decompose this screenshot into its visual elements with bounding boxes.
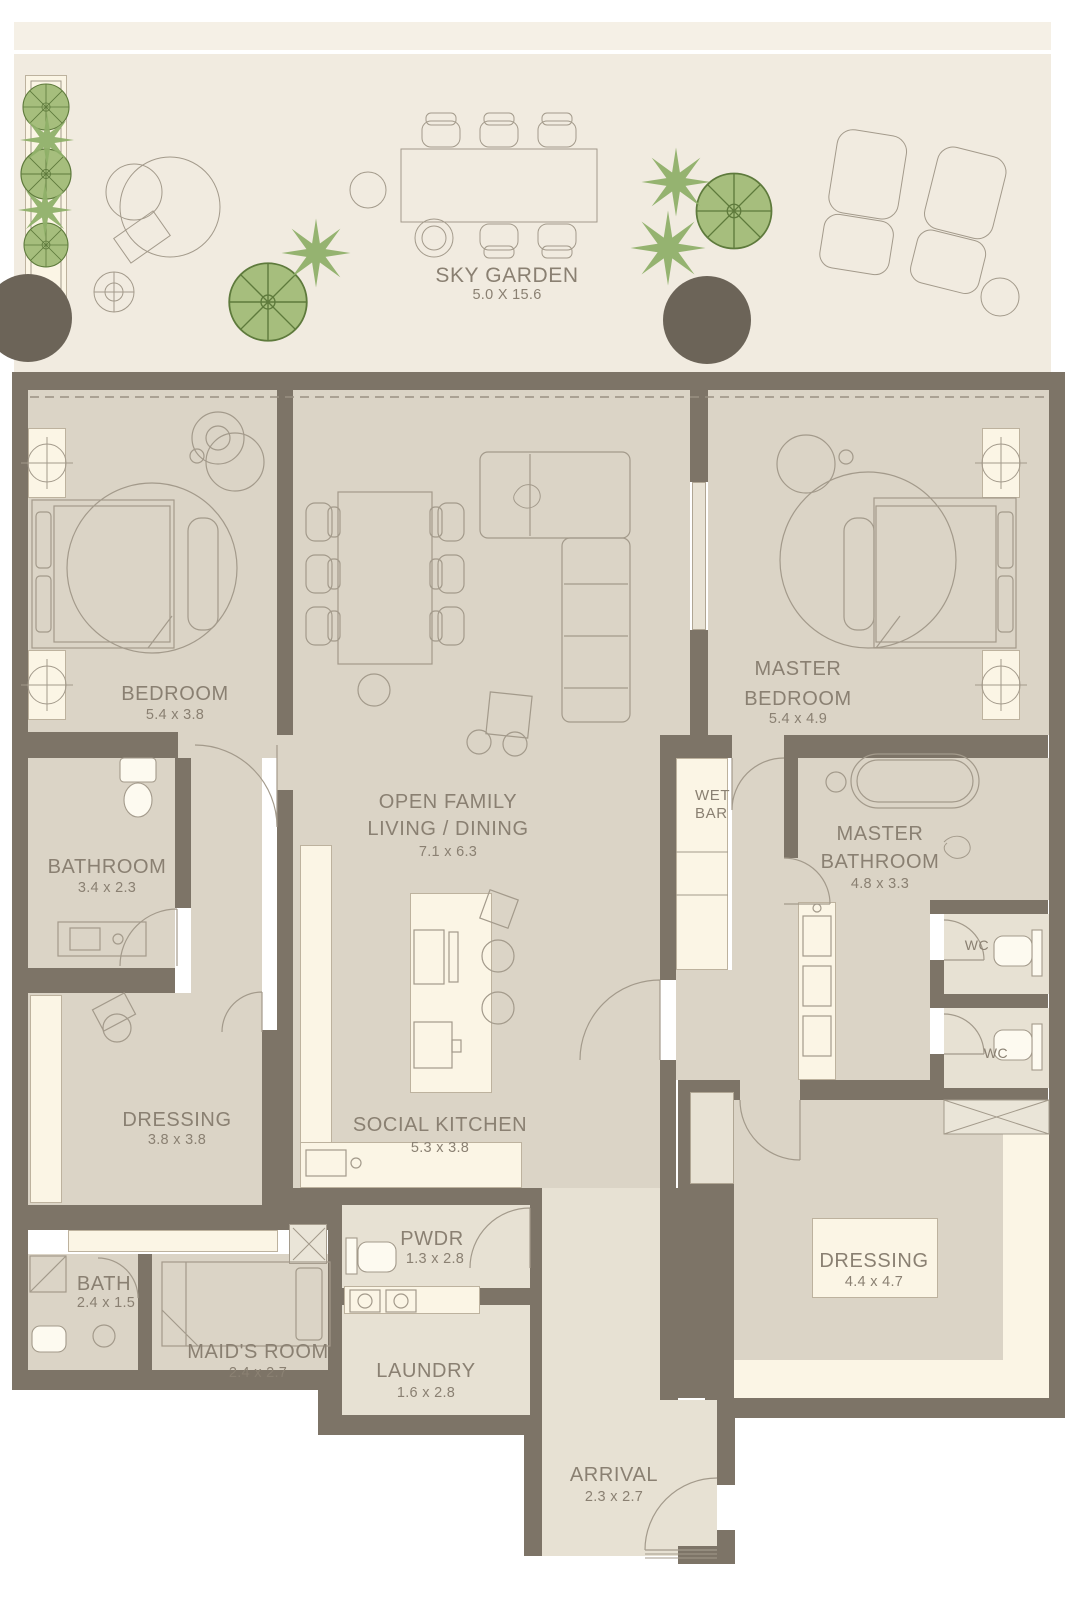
wall-niche [982,650,1020,720]
wall-niche [28,650,66,720]
door-opening-floor [740,1080,800,1100]
sky-garden-dims: 5.0 X 15.6 [472,288,541,304]
room-dressing-1 [28,993,262,1205]
wet-bar-label-line1: WET [695,788,730,805]
dressing-2-dims: 4.4 x 4.7 [845,1275,903,1291]
corridor-floor [178,732,277,758]
master-bedroom-label-line1: MASTER [755,658,842,680]
living-label-line2: LIVING / DINING [367,818,528,840]
room-wc-1 [944,914,1049,994]
master-corridor [732,735,784,970]
maids-wardrobe [68,1230,278,1252]
wall [660,758,676,970]
bath-dims: 2.4 x 1.5 [77,1296,135,1312]
wall [175,758,191,908]
wall [660,1188,678,1400]
dressing-1-dims: 3.8 x 3.8 [148,1133,206,1149]
wall [660,1060,676,1188]
garden-top-strip [14,22,1051,52]
bathroom-dims: 3.4 x 2.3 [78,881,136,897]
sliding-door-panel [692,482,706,630]
wall [12,1370,342,1390]
master-bedroom-dims: 5.4 x 4.9 [769,712,827,728]
maids-room-dims: 2.4 x 2.7 [229,1366,287,1382]
door-opening-floor [784,858,798,900]
arrival-dims: 2.3 x 2.7 [585,1490,643,1506]
garden-planter [25,75,67,327]
bath-label: BATH [77,1273,131,1295]
wet-bar-label-line2: BAR [695,806,728,823]
hall-corridor [542,1188,660,1400]
wall [930,994,1048,1008]
wall [930,960,944,994]
wall [277,390,293,735]
bedroom-label: BEDROOM [121,683,229,705]
wall [1049,390,1065,1418]
wall [705,1398,1065,1418]
door-opening-floor [277,735,293,790]
arrival-label: ARRIVAL [570,1464,658,1486]
wall [717,1415,735,1485]
wall [138,1254,152,1370]
master-bathroom-dims: 4.8 x 3.3 [851,877,909,893]
wall [690,372,708,482]
pwdr-dims: 1.3 x 2.8 [406,1252,464,1268]
wall [12,390,28,1390]
bedroom-dims: 5.4 x 3.8 [146,708,204,724]
social-kitchen-dims: 5.3 x 3.8 [411,1141,469,1157]
wall [530,1305,542,1415]
wall-niche [28,428,66,498]
bathroom-label: BATHROOM [48,856,167,878]
wall [28,732,178,758]
living-label-line1: OPEN FAMILY [379,791,518,813]
laundry-counter [344,1286,480,1314]
dressing-2-wardrobe [1003,1100,1049,1360]
wall [262,1030,277,1205]
wc-2-label: WC [984,1046,1009,1061]
maids-room-label: MAID'S ROOM [187,1341,329,1363]
living-dims: 7.1 x 6.3 [419,845,477,861]
dressing-2-wardrobe [734,1360,1049,1398]
master-corridor [676,970,784,1080]
wall [28,968,175,993]
wall [660,735,732,758]
wc-1-label: WC [965,938,990,953]
dressing-1-wardrobe [30,995,62,1203]
master-bathroom-label-line2: BATHROOM [821,851,940,873]
wall [930,900,1048,914]
shaft-box [289,1224,327,1264]
dressing-1-label: DRESSING [122,1109,231,1131]
floor-plan: SKY GARDEN 5.0 X 15.6 BEDROOM 5.4 x 3.8 … [0,0,1077,1609]
shaft-recess [690,1092,734,1184]
wall [784,735,1048,758]
pwdr-label: PWDR [400,1228,464,1250]
master-bedroom-label-line2: BEDROOM [744,688,852,710]
laundry-dims: 1.6 x 2.8 [397,1386,455,1402]
laundry-label: LAUNDRY [376,1360,475,1382]
wall [690,630,708,735]
sky-garden-label: SKY GARDEN [435,264,578,287]
wall [524,1400,542,1556]
sky-garden-area [14,54,1051,372]
room-bath [28,1254,138,1370]
wall [292,1188,542,1205]
dressing-2-label: DRESSING [819,1250,928,1272]
master-vanity [798,902,836,1080]
wall-niche [982,428,1020,498]
social-kitchen-label: SOCIAL KITCHEN [353,1114,527,1136]
room-living [293,390,690,735]
master-bathroom-label-line1: MASTER [837,823,924,845]
wall [784,758,798,858]
wall [530,1205,542,1288]
wall [330,1415,542,1435]
room-arrival [542,1546,678,1556]
kitchen-counter [300,845,332,1145]
wall [678,1546,735,1564]
wall [277,790,293,1205]
wall [12,372,1065,390]
wall [660,970,676,980]
kitchen-island [410,893,492,1093]
